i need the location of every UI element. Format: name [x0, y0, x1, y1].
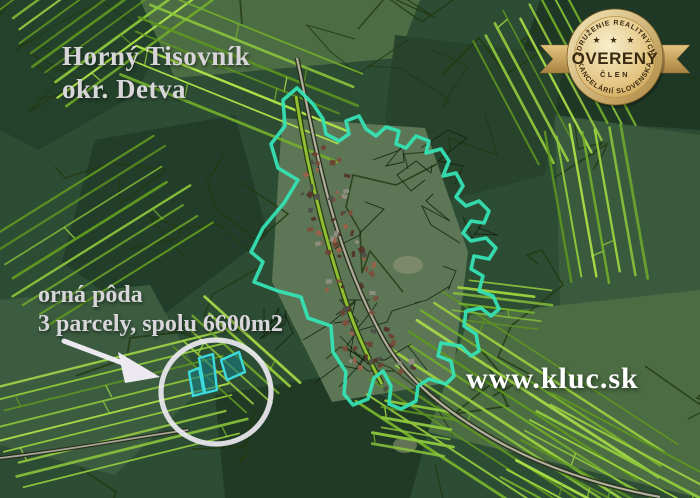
badge-title: OVERENÝ	[572, 49, 659, 68]
listing-image: ZDRUŽENIE REALITNÝCH ★ ★ ★ OVERENÝ ČLEN …	[0, 0, 700, 498]
badge-member: ČLEN	[600, 70, 630, 79]
cadastral-aerial-map: ZDRUŽENIE REALITNÝCH ★ ★ ★ OVERENÝ ČLEN …	[0, 0, 700, 498]
badge-stars-icon: ★ ★ ★	[593, 36, 638, 46]
